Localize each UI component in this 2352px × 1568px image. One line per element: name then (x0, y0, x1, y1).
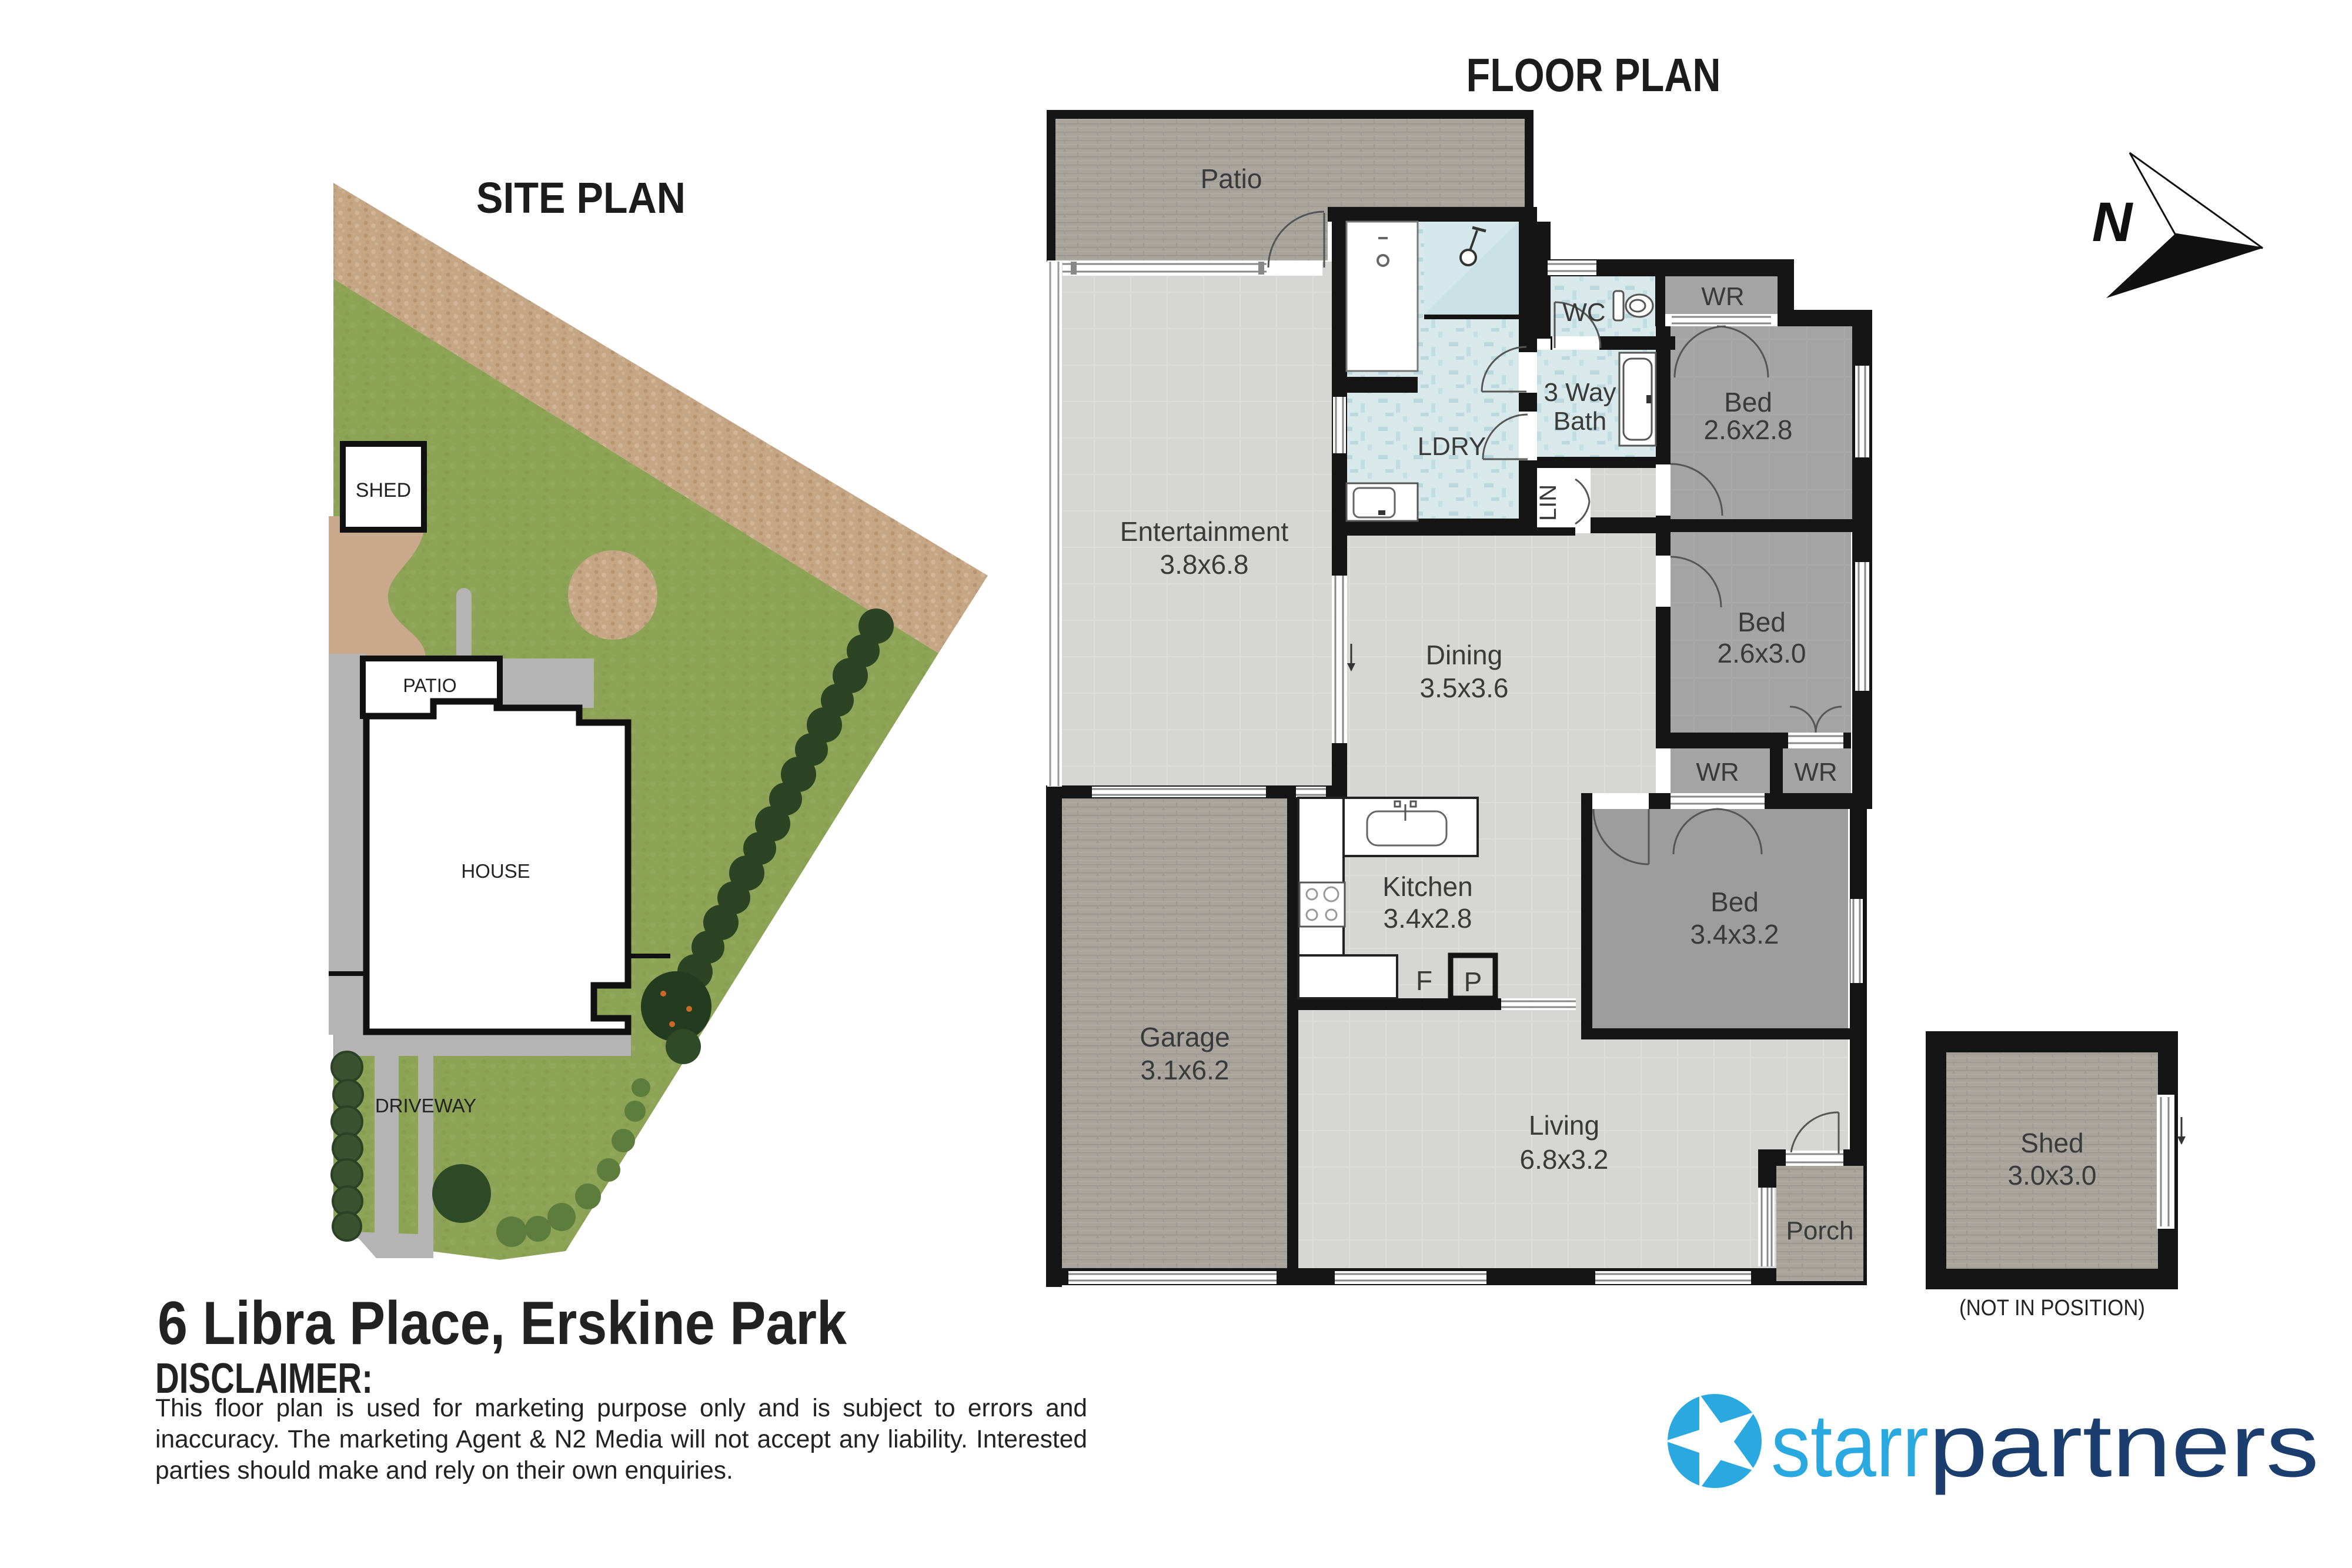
svg-text:partners: partners (1929, 1396, 2319, 1496)
svg-text:N: N (2092, 191, 2134, 253)
svg-text:2.6x2.8: 2.6x2.8 (1704, 414, 1793, 445)
svg-text:Garage: Garage (1140, 1022, 1230, 1052)
svg-text:F: F (1416, 965, 1432, 996)
svg-text:3 Way: 3 Way (1543, 378, 1616, 407)
svg-text:starr: starr (1771, 1396, 1929, 1496)
svg-text:WR: WR (1794, 758, 1837, 787)
svg-text:3.4x3.2: 3.4x3.2 (1690, 919, 1779, 950)
svg-text:HOUSE: HOUSE (461, 860, 530, 882)
svg-text:FLOOR PLAN: FLOOR PLAN (1466, 49, 1721, 101)
svg-text:3.4x2.8: 3.4x2.8 (1384, 903, 1472, 934)
svg-text:Entertainment: Entertainment (1120, 516, 1289, 547)
svg-text:SHED: SHED (356, 479, 411, 502)
svg-text:6.8x3.2: 6.8x3.2 (1520, 1144, 1609, 1175)
svg-text:6 Libra Place, Erskine Park: 6 Libra Place, Erskine Park (158, 1289, 847, 1358)
svg-text:P: P (1464, 967, 1482, 997)
svg-text:Porch: Porch (1786, 1216, 1854, 1245)
svg-text:WC: WC (1562, 298, 1605, 327)
svg-text:WR: WR (1701, 282, 1744, 311)
svg-text:Kitchen: Kitchen (1382, 871, 1472, 902)
svg-text:3.0x3.0: 3.0x3.0 (2008, 1160, 2097, 1191)
svg-text:3.5x3.6: 3.5x3.6 (1420, 673, 1509, 703)
svg-text:Dining: Dining (1426, 640, 1502, 670)
svg-text:Bath: Bath (1553, 407, 1607, 436)
svg-text:PATIO: PATIO (403, 675, 456, 696)
svg-text:3.8x6.8: 3.8x6.8 (1160, 549, 1249, 580)
svg-text:Living: Living (1529, 1110, 1599, 1141)
svg-text:Patio: Patio (1201, 163, 1262, 194)
svg-text:Bed: Bed (1738, 607, 1786, 637)
svg-text:2.6x3.0: 2.6x3.0 (1718, 638, 1806, 668)
svg-text:SITE PLAN: SITE PLAN (476, 173, 686, 222)
svg-text:DRIVEWAY: DRIVEWAY (375, 1095, 476, 1116)
svg-text:LIN: LIN (1535, 484, 1561, 521)
svg-text:(NOT IN POSITION): (NOT IN POSITION) (1959, 1296, 2145, 1320)
svg-text:Bed: Bed (1724, 387, 1772, 417)
svg-text:LDRY: LDRY (1418, 432, 1486, 461)
svg-text:Shed: Shed (2020, 1128, 2083, 1158)
svg-text:Bed: Bed (1710, 887, 1759, 917)
svg-text:3.1x6.2: 3.1x6.2 (1141, 1055, 1230, 1085)
svg-text:WR: WR (1696, 758, 1739, 787)
